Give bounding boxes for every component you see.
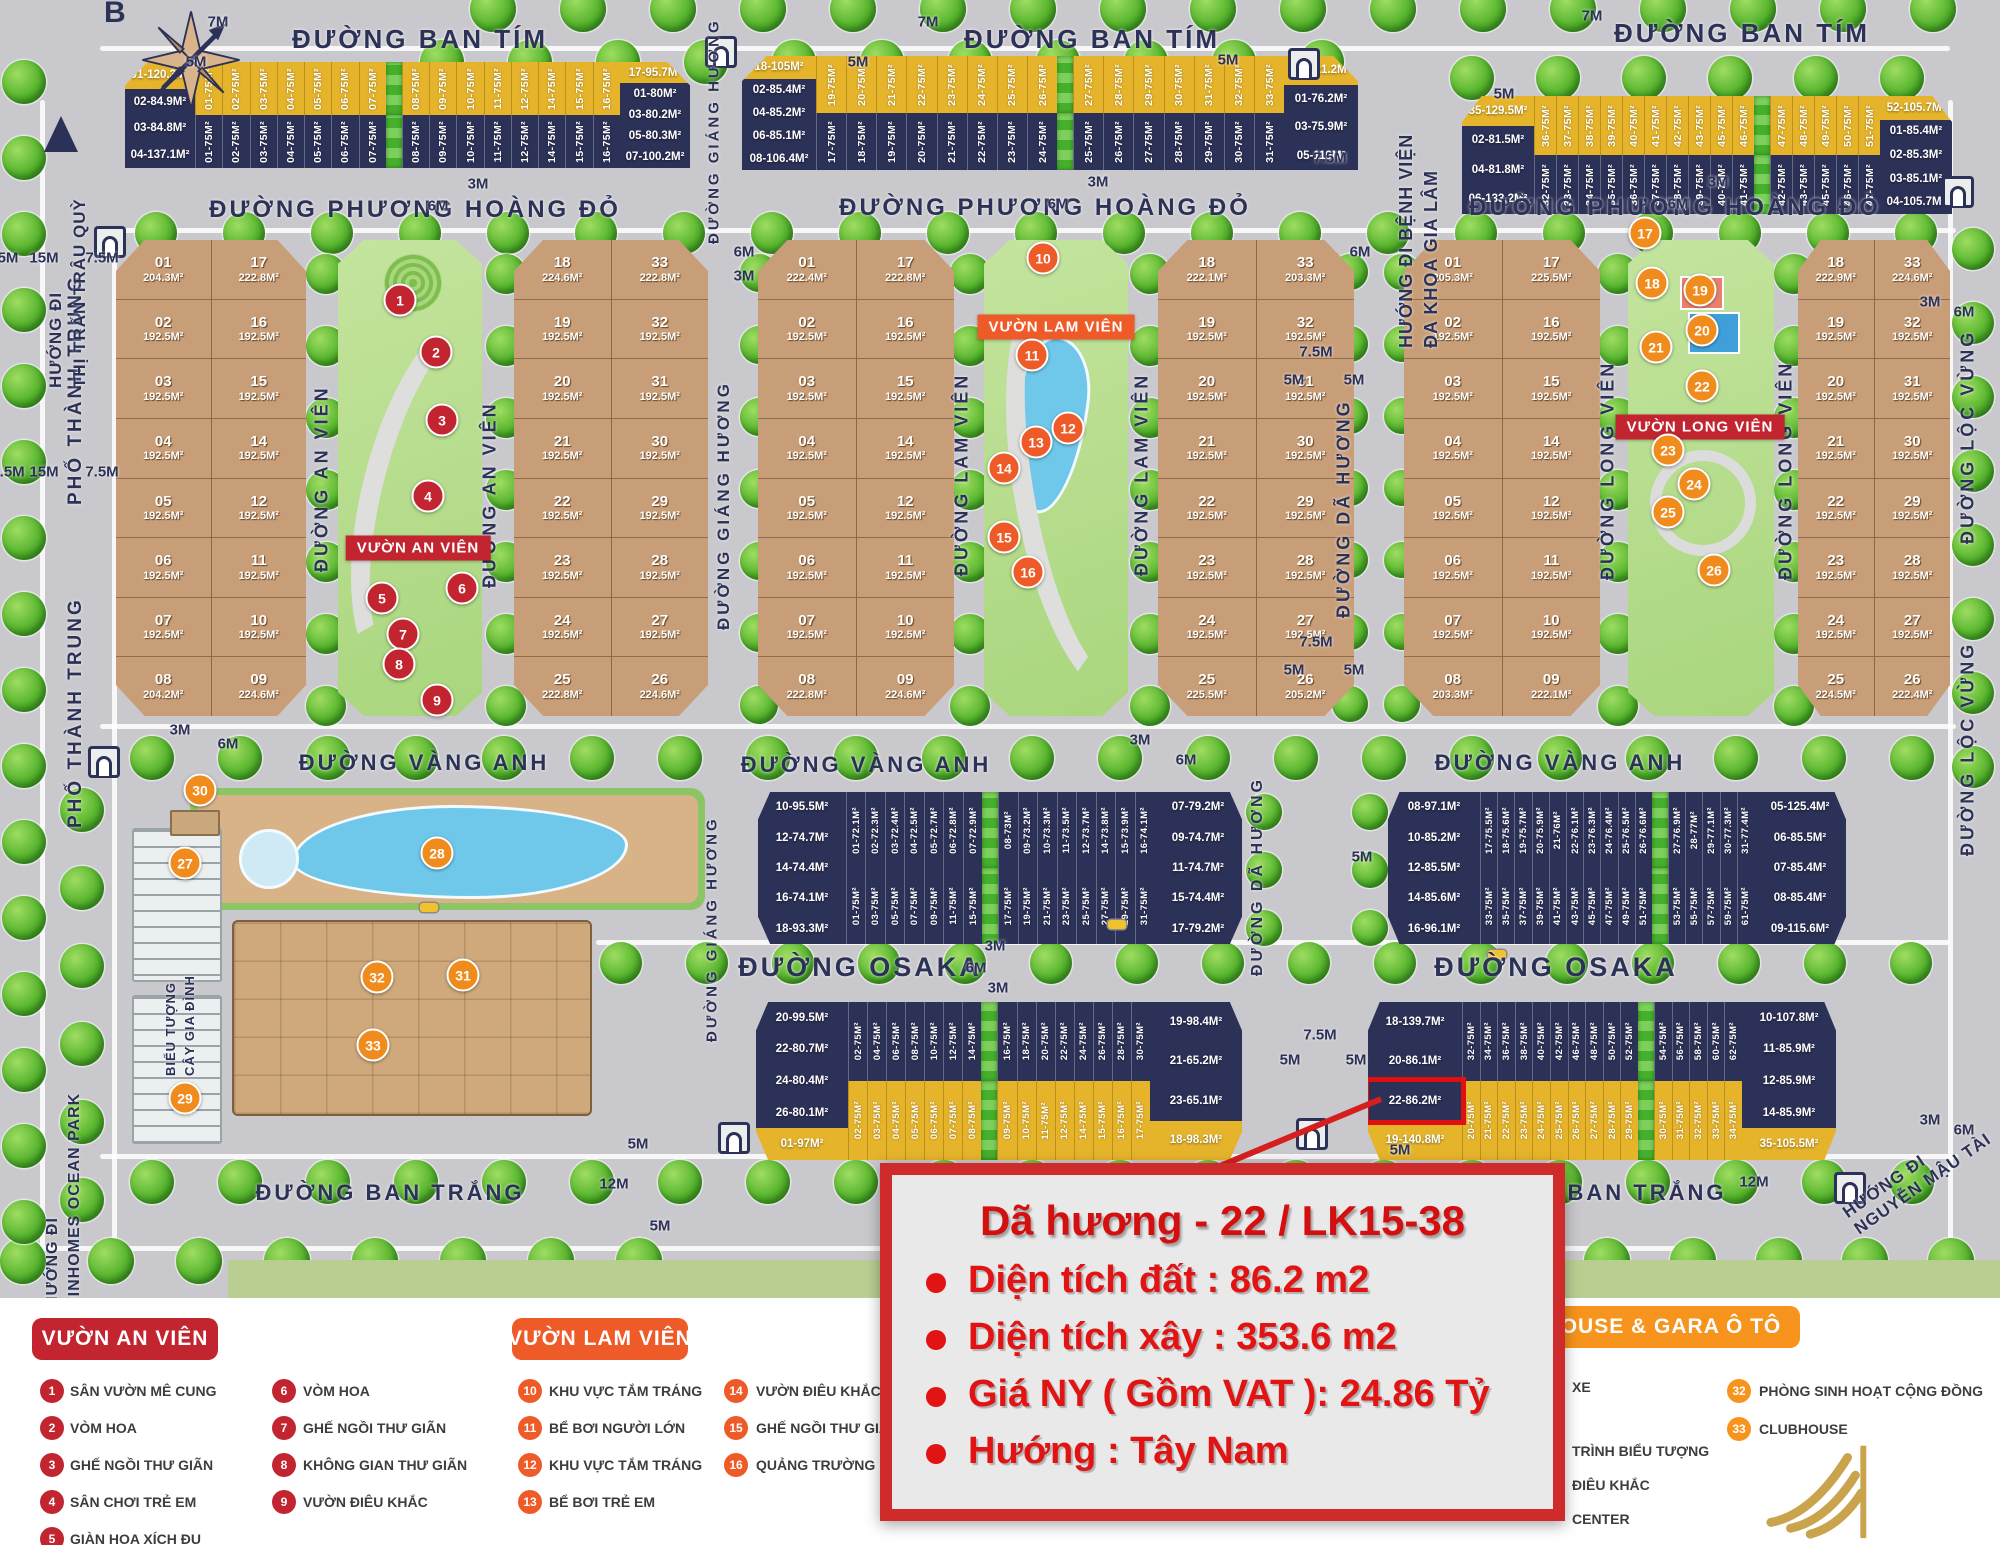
villa-lot[interactable]: 11192.5M² — [1503, 538, 1601, 598]
villa-lot[interactable]: 30192.5M² — [612, 419, 709, 479]
villa-lot[interactable]: 25222.8M² — [514, 657, 611, 716]
lot-unit[interactable]: 28-75M² — [1603, 1081, 1621, 1160]
lot-unit[interactable]: 14-73.8M² — [1096, 792, 1115, 868]
villa-lot[interactable]: 19192.5M² — [514, 300, 611, 360]
lot-unit[interactable]: 12-75M² — [1055, 1081, 1074, 1160]
lot-unit[interactable]: 17-75M² — [998, 868, 1017, 944]
villa-lot[interactable]: 01204.3M² — [116, 240, 211, 300]
lot-unit[interactable]: 48-75M² — [1792, 96, 1814, 155]
villa-lot[interactable]: 16192.5M² — [1503, 300, 1601, 360]
lot-unit[interactable]: 23-75M² — [1515, 1081, 1533, 1160]
lot-unit[interactable]: 58-75M² — [1689, 1002, 1707, 1081]
lot-end-unit[interactable]: 08-85.4M² — [1754, 883, 1846, 913]
lot-unit[interactable]: 16-75M² — [997, 1002, 1016, 1081]
villa-lot[interactable]: 22192.5M² — [1158, 479, 1256, 539]
villa-lot[interactable]: 31192.5M² — [1875, 359, 1951, 419]
lot-unit[interactable]: 03-75M² — [867, 1081, 886, 1160]
lot-unit[interactable]: 10-75M² — [924, 1002, 943, 1081]
lot-unit[interactable]: 09-75M² — [429, 62, 456, 115]
lot-unit[interactable]: 06-75M² — [331, 62, 358, 115]
lot-end-unit[interactable]: 09-115.6M² — [1754, 914, 1846, 944]
lot-end-unit[interactable]: 17-95.7M² — [620, 62, 690, 83]
lot-unit[interactable]: 19-75M² — [876, 113, 906, 170]
villa-lot[interactable]: 14192.5M² — [212, 419, 307, 479]
villa-lot[interactable]: 24192.5M² — [514, 598, 611, 658]
lot-unit[interactable]: 61-75M² — [1737, 868, 1754, 944]
lot-end-unit[interactable]: 14-74.4M² — [758, 853, 846, 883]
amenity-marker-11[interactable]: 11 — [1016, 339, 1049, 372]
villa-lot[interactable]: 19192.5M² — [1158, 300, 1256, 360]
lot-end-unit[interactable]: 07-85.4M² — [1754, 853, 1846, 883]
lot-unit[interactable]: 02-72.3M² — [865, 792, 884, 868]
lot-unit[interactable]: 18-75M² — [846, 113, 876, 170]
amenity-marker-5[interactable]: 5 — [366, 582, 399, 615]
lot-unit[interactable]: 29-75M² — [1133, 56, 1163, 113]
lot-unit[interactable]: 28-75M² — [1103, 56, 1133, 113]
lot-end-unit[interactable]: 20-99.5M² — [756, 1002, 848, 1034]
lot-end-unit[interactable]: 06-85.1M² — [742, 124, 816, 147]
lot-unit[interactable]: 21-75M² — [937, 113, 967, 170]
lot-unit[interactable]: 41-75M² — [1644, 96, 1666, 155]
lot-unit[interactable]: 24-75M² — [967, 56, 997, 113]
lot-unit[interactable]: 50-75M² — [1603, 1002, 1621, 1081]
lot-unit[interactable]: 27-76.9M² — [1668, 792, 1685, 868]
lot-unit[interactable]: 25-75M² — [997, 56, 1027, 113]
lot-unit[interactable]: 15-75M² — [963, 868, 982, 944]
lot-end-unit[interactable]: 09-74.7M² — [1154, 822, 1242, 852]
villa-lot[interactable]: 04192.5M² — [1404, 419, 1502, 479]
lot-unit[interactable]: 27-75M² — [1585, 1081, 1603, 1160]
villa-lot[interactable]: 28192.5M² — [1875, 538, 1951, 598]
lot-unit[interactable]: 07-75M² — [359, 115, 386, 168]
lot-unit[interactable]: 15-75M² — [1093, 1081, 1112, 1160]
villa-lot[interactable]: 15192.5M² — [1503, 359, 1601, 419]
lot-end-unit[interactable]: 01-76.2M² — [1284, 85, 1358, 114]
lot-end-unit[interactable]: 14-85.6M² — [1388, 883, 1480, 913]
villa-lot[interactable]: 18224.6M² — [514, 240, 611, 300]
lot-end-unit[interactable]: 23-65.1M² — [1150, 1081, 1242, 1121]
lot-unit[interactable]: 31-75M² — [1135, 868, 1154, 944]
lot-unit[interactable]: 24-75M² — [1074, 1002, 1093, 1081]
lot-unit[interactable]: 02-75M² — [848, 1002, 867, 1081]
lot-unit[interactable]: 08-75M² — [962, 1081, 981, 1160]
lot-unit[interactable]: 10-73.3M² — [1037, 792, 1056, 868]
villa-lot[interactable]: 24192.5M² — [1158, 598, 1256, 658]
lot-unit[interactable]: 45-75M² — [1583, 868, 1600, 944]
lot-unit[interactable]: 51-75M² — [1635, 868, 1652, 944]
lot-unit[interactable]: 25-75M² — [1073, 113, 1103, 170]
lot-end-unit[interactable]: 04-137.1M² — [125, 142, 195, 169]
lot-unit[interactable]: 02-75M² — [222, 115, 249, 168]
villa-lot[interactable]: 22192.5M² — [514, 479, 611, 539]
lot-end-unit[interactable]: 18-105M² — [742, 56, 816, 79]
lot-end-unit[interactable]: 26-80.1M² — [756, 1097, 848, 1129]
lot-unit[interactable]: 22-75M² — [967, 113, 997, 170]
lot-unit[interactable]: 46-75M² — [1568, 1002, 1586, 1081]
lot-end-unit[interactable]: 05-125.4M² — [1754, 792, 1846, 822]
amenity-marker-20[interactable]: 20 — [1686, 314, 1719, 347]
lot-unit[interactable]: 08-75M² — [905, 1002, 924, 1081]
villa-lot[interactable]: 05192.5M² — [1404, 479, 1502, 539]
lot-unit[interactable]: 19-75M² — [816, 56, 846, 113]
villa-lot[interactable]: 20192.5M² — [1158, 359, 1256, 419]
amenity-marker-9[interactable]: 9 — [421, 684, 454, 717]
lot-unit[interactable]: 24-75M² — [1027, 113, 1057, 170]
lot-unit[interactable]: 31-77.4M² — [1737, 792, 1754, 868]
lot-unit[interactable]: 12-73.7M² — [1076, 792, 1095, 868]
villa-lot[interactable]: 08204.2M² — [116, 657, 211, 716]
lot-unit[interactable]: 22-75M² — [1055, 1002, 1074, 1081]
villa-lot[interactable]: 12192.5M² — [1503, 479, 1601, 539]
lot-unit[interactable]: 50-75M² — [1836, 96, 1858, 155]
lot-unit[interactable]: 33-75M² — [1254, 56, 1284, 113]
villa-lot[interactable]: 06192.5M² — [1404, 538, 1502, 598]
lot-unit[interactable]: 31-75M² — [1254, 113, 1284, 170]
lot-unit[interactable]: 48-75M² — [1585, 1002, 1603, 1081]
lot-unit[interactable]: 23-75M² — [997, 113, 1027, 170]
lot-unit[interactable]: 07-75M² — [943, 1081, 962, 1160]
lot-unit[interactable]: 06-75M² — [924, 1081, 943, 1160]
lot-unit[interactable]: 04-75M² — [277, 115, 304, 168]
lot-unit[interactable]: 49-75M² — [1618, 868, 1635, 944]
amenity-marker-8[interactable]: 8 — [383, 648, 416, 681]
lot-end-unit[interactable]: 11-74.7M² — [1154, 853, 1242, 883]
lot-unit[interactable]: 05-75M² — [304, 115, 331, 168]
lot-unit[interactable]: 08-73M² — [998, 792, 1017, 868]
villa-lot[interactable]: 27192.5M² — [1875, 598, 1951, 658]
amenity-marker-6[interactable]: 6 — [446, 572, 479, 605]
amenity-marker-29[interactable]: 29 — [169, 1082, 202, 1115]
lot-unit[interactable]: 10-75M² — [456, 62, 483, 115]
lot-unit[interactable]: 07-75M² — [904, 868, 923, 944]
lot-unit[interactable]: 14-75M² — [1074, 1081, 1093, 1160]
amenity-marker-10[interactable]: 10 — [1027, 242, 1060, 275]
villa-lot[interactable]: 09222.1M² — [1503, 657, 1601, 716]
lot-end-unit[interactable]: 08-106.4M² — [742, 147, 816, 170]
lot-end-unit[interactable]: 12-85.5M² — [1388, 853, 1480, 883]
amenity-marker-28[interactable]: 28 — [421, 837, 454, 870]
lot-unit[interactable]: 01-75M² — [846, 868, 865, 944]
lot-unit[interactable]: 16-75M² — [593, 115, 620, 168]
lot-end-unit[interactable]: 35-105.5M² — [1742, 1128, 1836, 1160]
lot-unit[interactable]: 39-75M² — [1532, 868, 1549, 944]
villa-lot[interactable]: 02192.5M² — [116, 300, 211, 360]
amenity-marker-17[interactable]: 17 — [1629, 217, 1662, 250]
lot-unit[interactable]: 51-75M² — [1858, 96, 1880, 155]
lot-unit[interactable]: 15-73.9M² — [1115, 792, 1134, 868]
lot-unit[interactable]: 12-75M² — [943, 1002, 962, 1081]
lot-unit[interactable]: 18-75M² — [1017, 1002, 1036, 1081]
lot-unit[interactable]: 21-75M² — [876, 56, 906, 113]
lot-unit[interactable]: 16-75M² — [593, 62, 620, 115]
villa-lot[interactable]: 10192.5M² — [1503, 598, 1601, 658]
lot-unit[interactable]: 36-75M² — [1534, 96, 1556, 155]
lot-end-unit[interactable]: 01-80M² — [620, 83, 690, 104]
amenity-marker-23[interactable]: 23 — [1652, 434, 1685, 467]
lot-end-unit[interactable]: 02-85.3M² — [1880, 143, 1952, 167]
villa-lot[interactable]: 21192.5M² — [514, 419, 611, 479]
amenity-marker-33[interactable]: 33 — [357, 1029, 390, 1062]
lot-end-unit[interactable]: 10-95.5M² — [758, 792, 846, 822]
lot-unit[interactable]: 29-75M² — [1115, 868, 1134, 944]
lot-unit[interactable]: 27-75M² — [1133, 113, 1163, 170]
villa-lot[interactable]: 23192.5M² — [1798, 538, 1874, 598]
lot-unit[interactable]: 17-75M² — [1131, 1081, 1150, 1160]
lot-end-unit[interactable]: 07-79.2M² — [1154, 792, 1242, 822]
villa-lot[interactable]: 31192.5M² — [612, 359, 709, 419]
lot-end-unit[interactable]: 02-85.4M² — [742, 79, 816, 102]
lot-unit[interactable]: 46-75M² — [1732, 96, 1754, 155]
lot-end-unit[interactable]: 10-85.2M² — [1388, 822, 1480, 852]
lot-end-unit[interactable]: 19-98.4M² — [1150, 1002, 1242, 1042]
lot-unit[interactable]: 20-75M² — [906, 113, 936, 170]
villa-lot[interactable]: 28192.5M² — [612, 538, 709, 598]
amenity-marker-12[interactable]: 12 — [1052, 412, 1085, 445]
villa-lot[interactable]: 09224.6M² — [212, 657, 307, 716]
lot-unit[interactable]: 03-72.4M² — [885, 792, 904, 868]
lot-unit[interactable]: 43-75M² — [1688, 96, 1710, 155]
lot-unit[interactable]: 23-76.3M² — [1583, 792, 1600, 868]
lot-unit[interactable]: 36-75M² — [1497, 1002, 1515, 1081]
villa-lot[interactable]: 07192.5M² — [116, 598, 211, 658]
lot-unit[interactable]: 30-75M² — [1164, 56, 1194, 113]
lot-unit[interactable]: 10-75M² — [456, 115, 483, 168]
villa-lot[interactable]: 02192.5M² — [758, 300, 856, 360]
villa-lot[interactable]: 12192.5M² — [212, 479, 307, 539]
lot-unit[interactable]: 07-75M² — [359, 62, 386, 115]
amenity-marker-1[interactable]: 1 — [384, 284, 417, 317]
lot-unit[interactable]: 38-75M² — [1515, 1002, 1533, 1081]
lot-unit[interactable]: 12-75M² — [511, 115, 538, 168]
villa-lot[interactable]: 10192.5M² — [857, 598, 955, 658]
lot-unit[interactable]: 23-75M² — [937, 56, 967, 113]
lot-unit[interactable]: 29-75M² — [1194, 113, 1224, 170]
lot-unit[interactable]: 21-75M² — [1037, 868, 1056, 944]
lot-end-unit[interactable]: 07-100.2M² — [620, 147, 690, 168]
lot-end-unit[interactable]: 03-75.9M² — [1284, 113, 1358, 142]
villa-lot[interactable]: 11192.5M² — [212, 538, 307, 598]
lot-unit[interactable]: 23-75M² — [1057, 868, 1076, 944]
lot-unit[interactable]: 29-75M² — [1620, 1081, 1638, 1160]
lot-unit[interactable]: 04-75M² — [867, 1002, 886, 1081]
villa-lot[interactable]: 09224.6M² — [857, 657, 955, 716]
lot-end-unit[interactable]: 02-81.5M² — [1462, 126, 1534, 156]
amenity-marker-30[interactable]: 30 — [184, 774, 217, 807]
villa-lot[interactable]: 12192.5M² — [857, 479, 955, 539]
lot-unit[interactable]: 26-75M² — [1568, 1081, 1586, 1160]
villa-lot[interactable]: 23192.5M² — [514, 538, 611, 598]
lot-end-unit[interactable]: 08-97.1M² — [1388, 792, 1480, 822]
lot-unit[interactable]: 30-77.3M² — [1720, 792, 1737, 868]
lot-unit[interactable]: 37-75M² — [1556, 96, 1578, 155]
lot-unit[interactable]: 47-75M² — [1770, 96, 1792, 155]
amenity-marker-31[interactable]: 31 — [447, 959, 480, 992]
lot-unit[interactable]: 20-75M² — [1462, 1081, 1480, 1160]
lot-end-unit[interactable]: 04-81.8M² — [1462, 155, 1534, 185]
lot-unit[interactable]: 26-75M² — [1027, 56, 1057, 113]
lot-end-unit[interactable]: 03-84.8M² — [125, 115, 195, 142]
lot-unit[interactable]: 35-75M² — [1497, 868, 1514, 944]
villa-lot[interactable]: 07192.5M² — [1404, 598, 1502, 658]
lot-unit[interactable]: 49-75M² — [1814, 96, 1836, 155]
lot-unit[interactable]: 33-75M² — [1480, 868, 1497, 944]
lot-unit[interactable]: 22-75M² — [906, 56, 936, 113]
amenity-marker-7[interactable]: 7 — [387, 618, 420, 651]
villa-lot[interactable]: 15192.5M² — [857, 359, 955, 419]
lot-unit[interactable]: 28-75M² — [1112, 1002, 1131, 1081]
villa-lot[interactable]: 04192.5M² — [116, 419, 211, 479]
lot-unit[interactable]: 05-72.7M² — [924, 792, 943, 868]
lot-unit[interactable]: 19-75.7M² — [1514, 792, 1531, 868]
lot-unit[interactable]: 12-75M² — [511, 62, 538, 115]
villa-lot[interactable]: 26222.4M² — [1875, 657, 1951, 716]
lot-unit[interactable]: 28-75M² — [1164, 113, 1194, 170]
lot-unit[interactable]: 03-75M² — [250, 115, 277, 168]
lot-end-unit[interactable]: 24-80.4M² — [756, 1065, 848, 1097]
lot-unit[interactable]: 05-75M² — [304, 62, 331, 115]
lot-unit[interactable]: 03-75M² — [250, 62, 277, 115]
villa-lot[interactable]: 26224.6M² — [612, 657, 709, 716]
lot-unit[interactable]: 20-75.9M² — [1532, 792, 1549, 868]
lot-unit[interactable]: 25-75M² — [1076, 868, 1095, 944]
villa-lot[interactable]: 17225.5M² — [1503, 240, 1601, 300]
lot-unit[interactable]: 34-75M² — [1480, 1002, 1498, 1081]
villa-lot[interactable]: 20192.5M² — [514, 359, 611, 419]
lot-unit[interactable]: 14-75M² — [538, 62, 565, 115]
lot-unit[interactable]: 55-75M² — [1685, 868, 1702, 944]
villa-lot[interactable]: 17222.8M² — [212, 240, 307, 300]
lot-unit[interactable]: 11-75M² — [484, 115, 511, 168]
lot-unit[interactable]: 26-75M² — [1093, 1002, 1112, 1081]
lot-unit[interactable]: 27-75M² — [1096, 868, 1115, 944]
lot-unit[interactable]: 56-75M² — [1672, 1002, 1690, 1081]
villa-lot[interactable]: 30192.5M² — [1875, 419, 1951, 479]
amenity-marker-2[interactable]: 2 — [420, 336, 453, 369]
lot-unit[interactable]: 17-75.5M² — [1480, 792, 1497, 868]
lot-unit[interactable]: 19-75M² — [1018, 868, 1037, 944]
villa-lot[interactable]: 24192.5M² — [1798, 598, 1874, 658]
villa-lot[interactable]: 18222.9M² — [1798, 240, 1874, 300]
lot-end-unit[interactable]: 11-85.9M² — [1742, 1034, 1836, 1066]
lot-end-unit[interactable]: 22-80.7M² — [756, 1034, 848, 1066]
lot-unit[interactable]: 09-75M² — [997, 1081, 1016, 1160]
lot-unit[interactable]: 60-75M² — [1707, 1002, 1725, 1081]
amenity-marker-13[interactable]: 13 — [1020, 426, 1053, 459]
lot-end-unit[interactable]: 01-85.4M² — [1880, 120, 1952, 144]
lot-unit[interactable]: 09-73.2M² — [1018, 792, 1037, 868]
lot-end-unit[interactable]: 14-85.9M² — [1742, 1097, 1836, 1129]
lot-unit[interactable]: 38-75M² — [1578, 96, 1600, 155]
lot-unit[interactable]: 06-75M² — [886, 1002, 905, 1081]
lot-unit[interactable]: 43-75M² — [1566, 868, 1583, 944]
villa-lot[interactable]: 03192.5M² — [1404, 359, 1502, 419]
amenity-marker-32[interactable]: 32 — [361, 961, 394, 994]
villa-lot[interactable]: 21192.5M² — [1798, 419, 1874, 479]
lot-unit[interactable]: 10-75M² — [1017, 1081, 1036, 1160]
lot-unit[interactable]: 45-75M² — [1710, 96, 1732, 155]
villa-lot[interactable]: 25225.5M² — [1158, 657, 1256, 716]
amenity-marker-15[interactable]: 15 — [988, 521, 1021, 554]
lot-unit[interactable]: 57-75M² — [1702, 868, 1719, 944]
lot-end-unit[interactable]: 15-74.4M² — [1154, 883, 1242, 913]
lot-unit[interactable]: 05-75M² — [905, 1081, 924, 1160]
villa-lot[interactable]: 18222.1M² — [1158, 240, 1256, 300]
lot-unit[interactable]: 04-72.5M² — [904, 792, 923, 868]
lot-unit[interactable]: 22-76.1M² — [1566, 792, 1583, 868]
villa-lot[interactable]: 06192.5M² — [758, 538, 856, 598]
lot-unit[interactable]: 30-75M² — [1224, 113, 1254, 170]
amenity-marker-21[interactable]: 21 — [1640, 331, 1673, 364]
lot-unit[interactable]: 28-77M² — [1685, 792, 1702, 868]
lot-unit[interactable]: 11-73.5M² — [1057, 792, 1076, 868]
lot-unit[interactable]: 14-75M² — [962, 1002, 981, 1081]
lot-unit[interactable]: 26-76.6M² — [1635, 792, 1652, 868]
amenity-marker-27[interactable]: 27 — [169, 847, 202, 880]
lot-unit[interactable]: 09-75M² — [429, 115, 456, 168]
lot-unit[interactable]: 04-75M² — [277, 62, 304, 115]
lot-unit[interactable]: 59-75M² — [1720, 868, 1737, 944]
amenity-marker-14[interactable]: 14 — [988, 452, 1021, 485]
villa-lot[interactable]: 20192.5M² — [1798, 359, 1874, 419]
amenity-marker-16[interactable]: 16 — [1012, 556, 1045, 589]
lot-unit[interactable]: 21-76M² — [1549, 792, 1566, 868]
lot-end-unit[interactable]: 10-107.8M² — [1742, 1002, 1836, 1034]
villa-lot[interactable]: 05192.5M² — [758, 479, 856, 539]
lot-end-unit[interactable]: 06-85.5M² — [1754, 822, 1846, 852]
lot-unit[interactable]: 21-75M² — [1480, 1081, 1498, 1160]
lot-unit[interactable]: 53-75M² — [1668, 868, 1685, 944]
villa-lot[interactable]: 05192.5M² — [116, 479, 211, 539]
lot-unit[interactable]: 05-75M² — [885, 868, 904, 944]
villa-lot[interactable]: 06192.5M² — [116, 538, 211, 598]
lot-end-unit[interactable]: 21-65.2M² — [1150, 1042, 1242, 1082]
amenity-marker-3[interactable]: 3 — [426, 404, 459, 437]
lot-unit[interactable]: 03-75M² — [865, 868, 884, 944]
highlighted-lot[interactable]: 22-86.2M² — [1368, 1081, 1462, 1121]
villa-lot[interactable]: 33203.3M² — [1257, 240, 1355, 300]
lot-unit[interactable]: 27-75M² — [1073, 56, 1103, 113]
villa-lot[interactable]: 03192.5M² — [116, 359, 211, 419]
lot-unit[interactable]: 16-74.1M² — [1135, 792, 1154, 868]
lot-end-unit[interactable]: 04-85.2M² — [742, 102, 816, 125]
lot-unit[interactable]: 06-75M² — [331, 115, 358, 168]
lot-end-unit[interactable]: 52-105.7M² — [1880, 96, 1952, 120]
lot-end-unit[interactable]: 18-139.7M² — [1368, 1002, 1462, 1042]
lot-unit[interactable]: 40-75M² — [1532, 1002, 1550, 1081]
villa-lot[interactable]: 21192.5M² — [1158, 419, 1256, 479]
lot-unit[interactable]: 17-75M² — [816, 113, 846, 170]
lot-end-unit[interactable]: 05-80.3M² — [620, 126, 690, 147]
lot-unit[interactable]: 40-75M² — [1622, 96, 1644, 155]
lot-unit[interactable]: 42-75M² — [1550, 1002, 1568, 1081]
lot-end-unit[interactable]: 03-80.2M² — [620, 104, 690, 125]
villa-lot[interactable]: 14192.5M² — [857, 419, 955, 479]
lot-unit[interactable]: 30-75M² — [1654, 1081, 1672, 1160]
villa-lot[interactable]: 19192.5M² — [1798, 300, 1874, 360]
villa-lot[interactable]: 16192.5M² — [857, 300, 955, 360]
lot-unit[interactable]: 16-75M² — [1112, 1081, 1131, 1160]
villa-lot[interactable]: 10192.5M² — [212, 598, 307, 658]
amenity-marker-4[interactable]: 4 — [412, 480, 445, 513]
lot-end-unit[interactable]: 19-140.8M² — [1368, 1121, 1462, 1161]
villa-lot[interactable]: 29192.5M² — [612, 479, 709, 539]
lot-unit[interactable]: 04-75M² — [886, 1081, 905, 1160]
lot-end-unit[interactable]: 17-79.2M² — [1154, 914, 1242, 944]
villa-lot[interactable]: 14192.5M² — [1503, 419, 1601, 479]
lot-unit[interactable]: 11-75M² — [484, 62, 511, 115]
lot-unit[interactable]: 31-75M² — [1672, 1081, 1690, 1160]
lot-unit[interactable]: 02-75M² — [848, 1081, 867, 1160]
